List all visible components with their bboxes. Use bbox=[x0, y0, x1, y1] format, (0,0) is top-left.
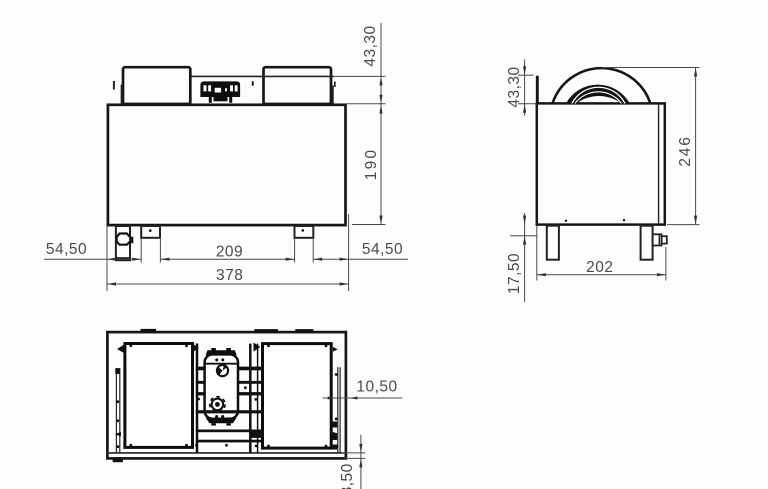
svg-text:17,50: 17,50 bbox=[506, 253, 523, 294]
svg-text:54,50: 54,50 bbox=[46, 241, 87, 258]
svg-text:43,30: 43,30 bbox=[362, 25, 379, 66]
svg-text:54,50: 54,50 bbox=[362, 241, 403, 258]
svg-text:10,50: 10,50 bbox=[356, 379, 397, 396]
svg-text:8,50: 8,50 bbox=[339, 463, 356, 489]
svg-text:43,30: 43,30 bbox=[506, 66, 523, 107]
svg-text:378: 378 bbox=[216, 267, 243, 284]
svg-text:202: 202 bbox=[586, 259, 613, 276]
svg-text:209: 209 bbox=[216, 243, 243, 260]
svg-text:246: 246 bbox=[677, 135, 694, 166]
svg-text:190: 190 bbox=[363, 148, 380, 180]
